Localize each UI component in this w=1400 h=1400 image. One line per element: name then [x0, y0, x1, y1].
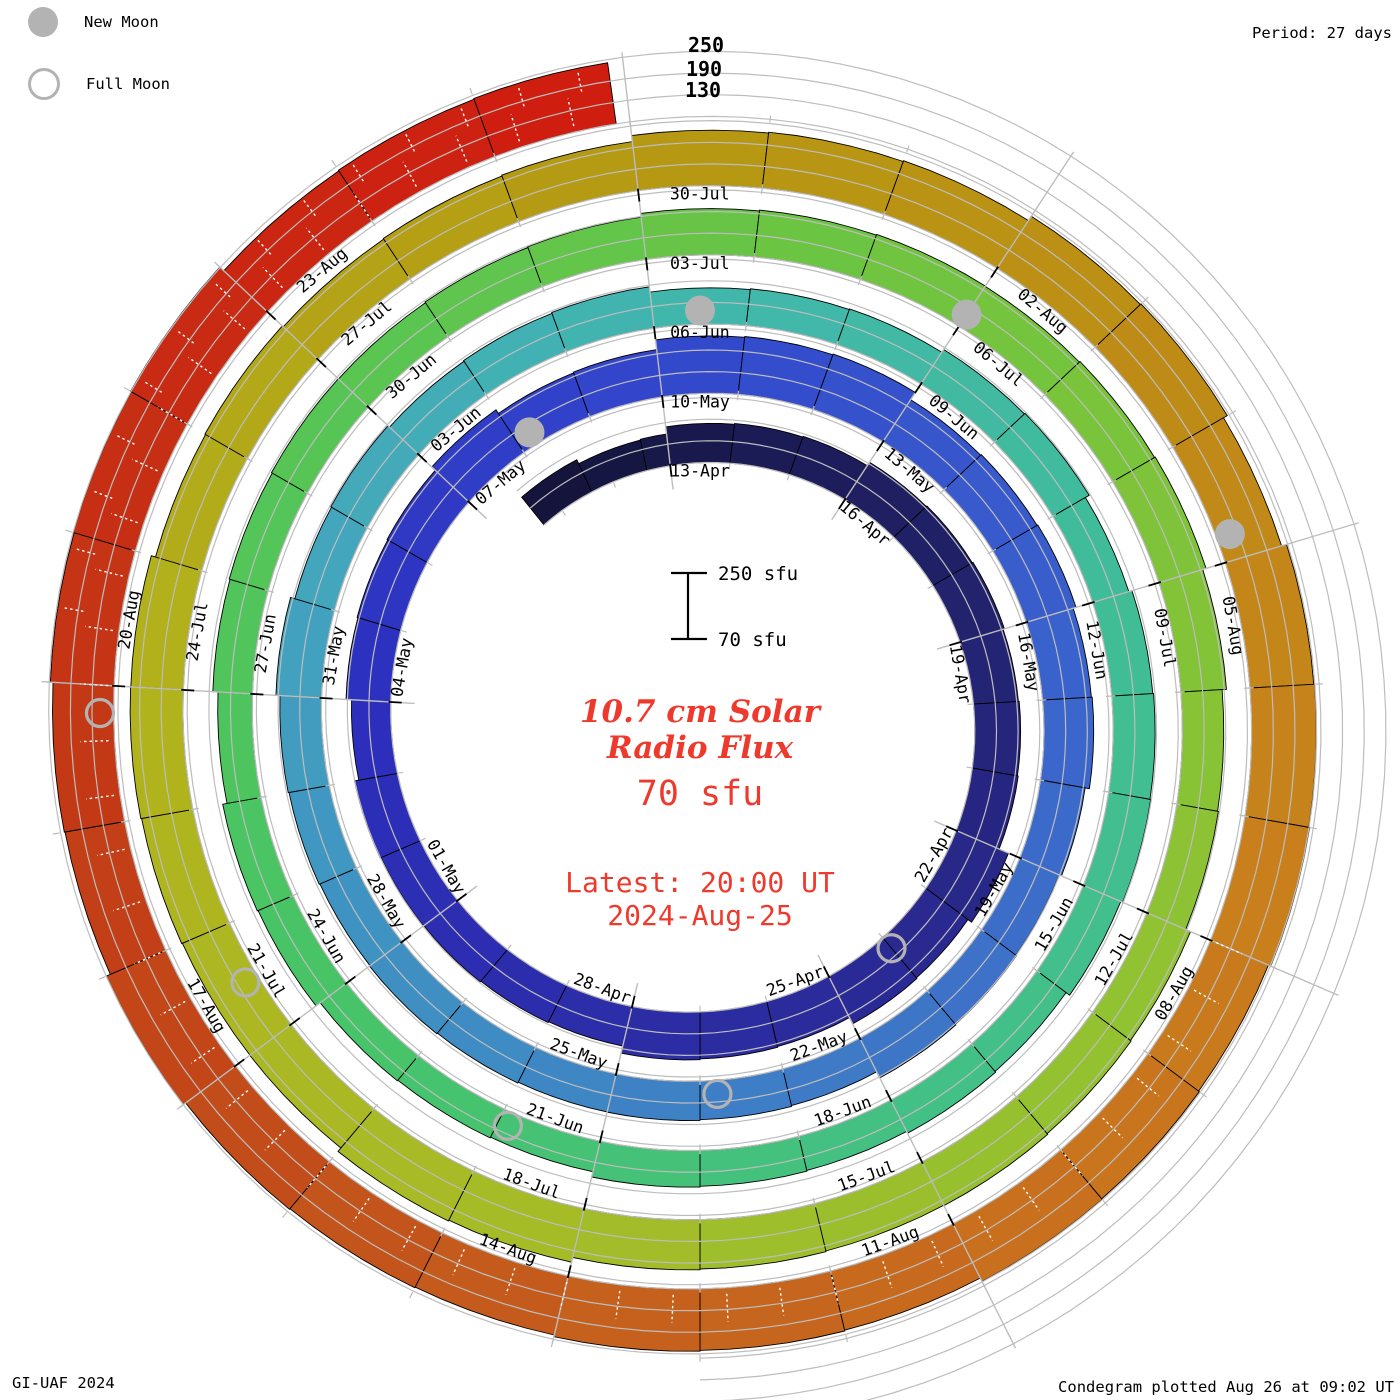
day-tick [737, 395, 738, 400]
legend-new-moon-row: New Moon [28, 6, 170, 38]
day-tick [567, 980, 569, 984]
flux-segment [229, 473, 307, 591]
new-moon-marker [1215, 519, 1245, 549]
day-tick [761, 189, 762, 194]
day-tick [811, 410, 813, 415]
day-tick [332, 160, 336, 166]
flux-segment [1083, 792, 1150, 902]
segment-tick [320, 698, 333, 699]
spiral-layer: 13-Apr16-Apr19-Apr22-Apr25-Apr28-Apr01-M… [41, 51, 1386, 1400]
new-moon-label: New Moon [84, 13, 159, 31]
segment-tick [250, 694, 263, 695]
condegram-chart: 13-Apr16-Apr19-Apr22-Apr25-Apr28-Apr01-M… [0, 0, 1400, 1400]
day-tick [1171, 803, 1176, 804]
day-tick [330, 784, 335, 785]
flux-segment [223, 797, 293, 911]
day-tick [282, 1212, 286, 1217]
full-moon-label: Full Moon [86, 75, 170, 93]
day-tick [126, 820, 131, 821]
day-tick [53, 833, 60, 834]
day-tick [829, 1265, 830, 1270]
day-tick [551, 1340, 553, 1347]
date-label: 10-May [670, 392, 730, 411]
plotted-timestamp: Condegram plotted Aug 26 at 09:02 UT [1058, 1378, 1394, 1396]
day-tick [745, 327, 746, 332]
segment-tick [181, 690, 194, 691]
day-tick [563, 511, 566, 515]
flux-segment [289, 785, 357, 884]
flux-segment [632, 130, 769, 190]
day-tick [879, 933, 882, 937]
day-tick [402, 631, 407, 632]
day-tick [335, 611, 340, 612]
segment-tick [112, 686, 125, 687]
day-tick [203, 571, 208, 572]
day-tick [1239, 815, 1244, 816]
day-tick [470, 88, 472, 95]
day-tick [136, 551, 141, 552]
flux-segment [425, 247, 542, 336]
new-moon-marker [685, 296, 715, 326]
segment-tick [345, 977, 355, 985]
date-label: 13-Apr [670, 462, 730, 481]
flux-segment [746, 289, 849, 345]
segment-tick [468, 501, 477, 510]
flux-segment [1041, 697, 1094, 789]
flux-segment [554, 1276, 700, 1351]
segment-tick [991, 267, 998, 278]
moon-legend: New Moon Full Moon [28, 6, 170, 130]
day-tick [65, 530, 72, 532]
date-label: 30-Jul [670, 185, 730, 204]
segment-tick [234, 1059, 244, 1067]
day-tick [1310, 828, 1317, 829]
day-tick [630, 118, 631, 125]
segment-tick [400, 935, 410, 943]
day-tick [797, 1130, 798, 1135]
flux-segment [1245, 684, 1316, 827]
segment-tick [289, 1018, 299, 1026]
radial-axis-labels: 250 190 130 [685, 33, 724, 102]
flux-segment [700, 1136, 807, 1186]
radial-tick-130: 130 [685, 78, 721, 102]
day-tick [508, 945, 511, 949]
flux-segment [1211, 816, 1310, 966]
day-tick [177, 1105, 183, 1109]
day-tick [813, 1198, 814, 1203]
segment-tick [877, 440, 884, 451]
day-tick [428, 563, 432, 566]
day-tick [421, 838, 426, 840]
scale-bar-top-label: 250 sfu [718, 563, 798, 585]
day-tick [966, 767, 971, 768]
day-tick [269, 591, 274, 592]
day-tick [398, 772, 403, 773]
full-moon-icon [28, 68, 60, 100]
new-moon-icon [28, 7, 58, 37]
flux-segment [464, 313, 566, 394]
segment-tick [886, 1090, 892, 1102]
day-tick [214, 262, 219, 267]
segment-tick [855, 1028, 861, 1040]
condegram-page: { "legend": { "new_moon": "New Moon", "f… [0, 0, 1400, 1400]
radial-tick-250: 250 [688, 33, 724, 57]
day-tick [410, 1292, 413, 1298]
day-tick [765, 996, 766, 1001]
segment-tick [917, 1152, 923, 1164]
period-label: Period: 27 days [1252, 24, 1392, 42]
flux-scale-bar: 250 sfu 70 sfu [671, 563, 798, 651]
day-tick [882, 215, 884, 220]
day-tick [770, 116, 771, 123]
flux-segment [656, 336, 745, 397]
segment-tick [456, 894, 466, 902]
segment-tick [948, 1214, 954, 1226]
day-tick [99, 977, 105, 980]
day-tick [124, 388, 130, 392]
day-tick [194, 808, 199, 809]
segment-tick [389, 702, 402, 703]
day-tick [846, 1335, 848, 1342]
segment-tick [915, 382, 922, 393]
day-tick [262, 796, 267, 797]
date-label: 06-Jun [670, 323, 730, 342]
day-tick [781, 1063, 782, 1068]
flux-segment [552, 287, 655, 352]
flux-segment [666, 423, 735, 465]
new-moon-marker [514, 417, 544, 447]
day-tick [928, 586, 932, 589]
legend-full-moon-row: Full Moon [28, 68, 170, 100]
day-tick [614, 483, 616, 488]
flux-segment [762, 132, 903, 214]
new-moon-marker [952, 300, 982, 330]
day-tick [1035, 779, 1040, 780]
date-label: 03-Jul [670, 254, 730, 273]
flux-segment [474, 63, 616, 157]
credit-label: GI-UAF 2024 [12, 1374, 115, 1392]
day-tick [753, 258, 754, 263]
day-tick [1103, 791, 1108, 792]
flux-segment [579, 440, 647, 492]
day-tick [787, 476, 789, 481]
scale-bar-bottom-label: 70 sfu [718, 629, 787, 651]
